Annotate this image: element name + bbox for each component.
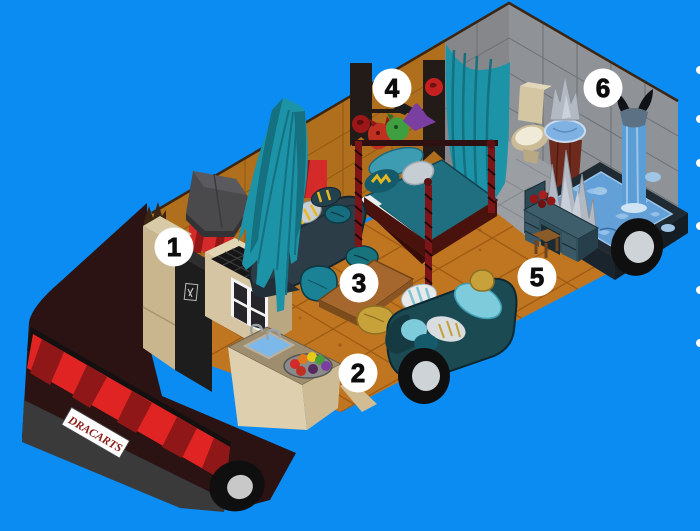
svg-text:6: 6 xyxy=(596,73,610,103)
svg-text:1: 1 xyxy=(167,232,181,262)
svg-text:4: 4 xyxy=(385,73,400,103)
svg-text:3: 3 xyxy=(352,268,366,298)
svg-text:5: 5 xyxy=(530,262,544,292)
svg-text:2: 2 xyxy=(351,358,365,388)
